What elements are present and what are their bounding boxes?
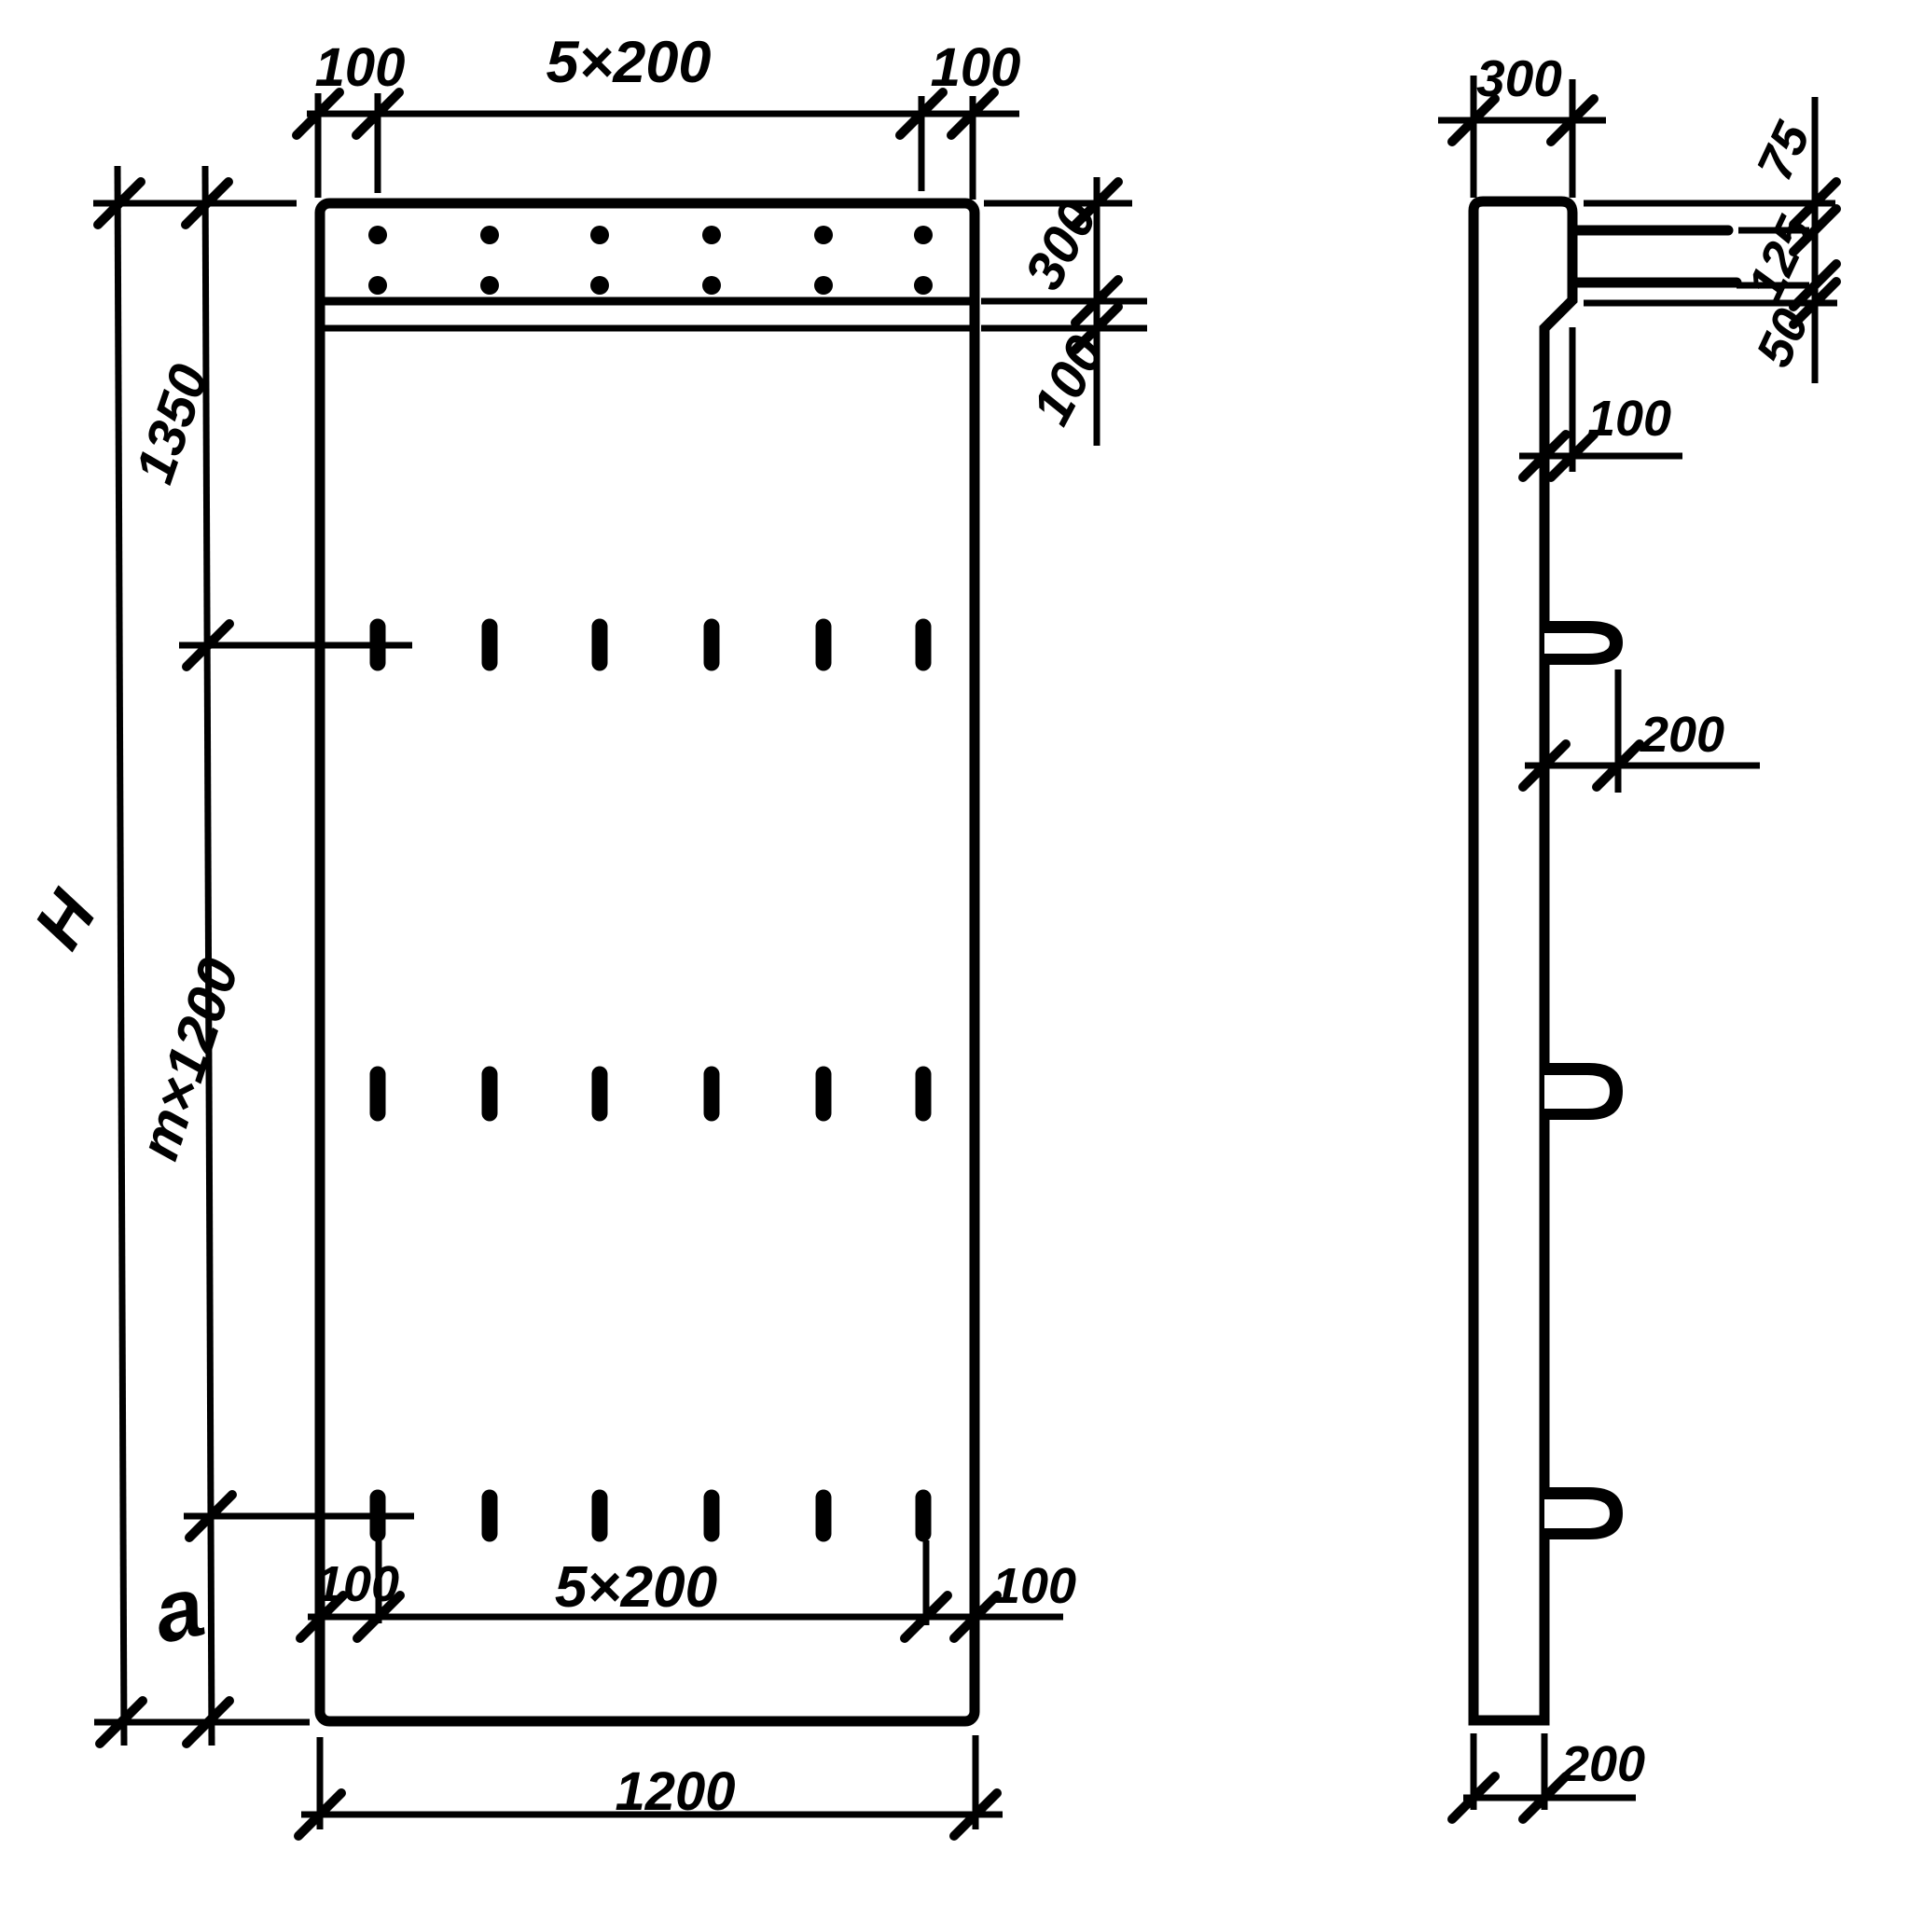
svg-text:100: 100 [315, 37, 406, 98]
svg-text:5×200: 5×200 [555, 1555, 717, 1620]
svg-text:100: 100 [315, 1556, 399, 1612]
svg-text:100: 100 [931, 37, 1021, 98]
svg-text:200: 200 [1560, 1736, 1645, 1792]
svg-text:100: 100 [1587, 391, 1671, 447]
svg-text:300: 300 [1476, 49, 1562, 107]
svg-text:5×200: 5×200 [547, 30, 712, 95]
svg-text:100: 100 [992, 1558, 1076, 1614]
svg-text:1200: 1200 [615, 1761, 735, 1822]
svg-text:200: 200 [1640, 707, 1724, 763]
